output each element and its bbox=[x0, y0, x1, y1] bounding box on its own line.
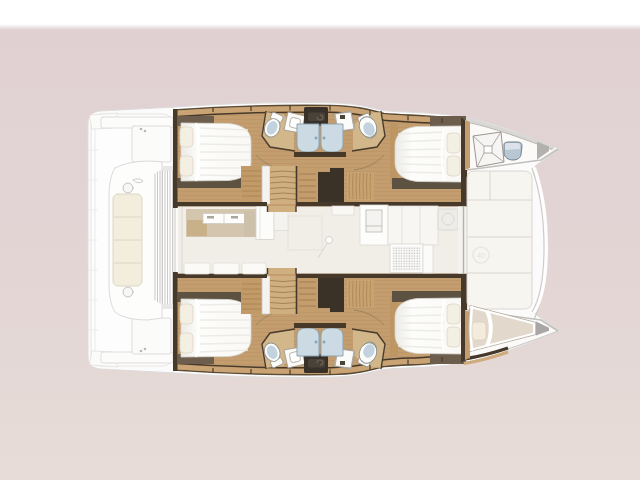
svg-text:40: 40 bbox=[477, 252, 485, 259]
